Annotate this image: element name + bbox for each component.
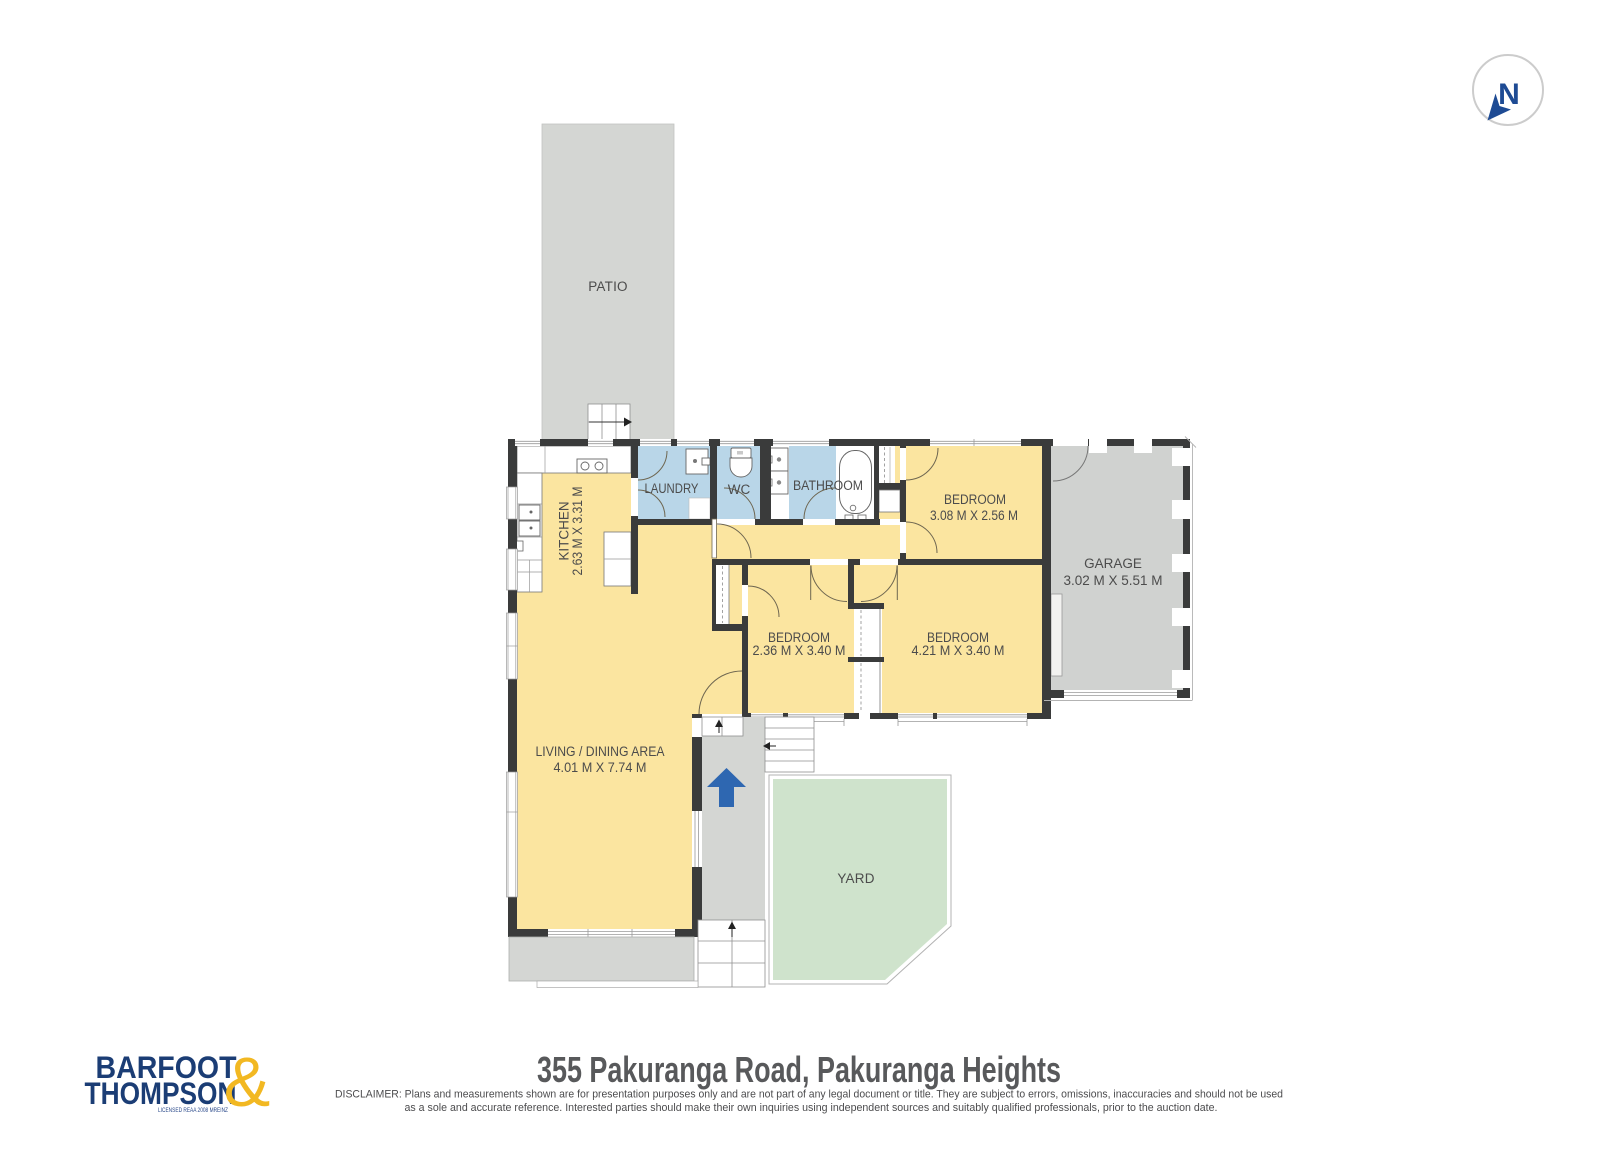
svg-text:BEDROOM: BEDROOM <box>944 492 1006 507</box>
svg-text:BATHROOM: BATHROOM <box>793 478 863 493</box>
svg-text:3.02 M X 5.51 M: 3.02 M X 5.51 M <box>1063 573 1162 588</box>
svg-text:N: N <box>1498 78 1520 111</box>
svg-text:YARD: YARD <box>837 871 874 886</box>
svg-text:PATIO: PATIO <box>588 279 628 294</box>
svg-text:LAUNDRY: LAUNDRY <box>645 481 699 496</box>
svg-text:2.63 M X 3.31 M: 2.63 M X 3.31 M <box>570 487 585 576</box>
svg-text:GARAGE: GARAGE <box>1084 556 1142 571</box>
svg-text:WC: WC <box>728 482 751 497</box>
svg-text:&: & <box>224 1043 271 1121</box>
svg-text:DISCLAIMER: Plans and measurem: DISCLAIMER: Plans and measurements shown… <box>335 1089 1283 1101</box>
svg-text:LICENSED REAA 2008 MREINZ: LICENSED REAA 2008 MREINZ <box>158 1107 228 1114</box>
svg-text:3.08 M X 2.56 M: 3.08 M X 2.56 M <box>930 508 1018 523</box>
svg-text:4.21 M X 3.40 M: 4.21 M X 3.40 M <box>912 643 1005 658</box>
svg-text:as a sole and accurate referen: as a sole and accurate reference. Intere… <box>405 1102 1218 1114</box>
svg-text:4.01 M X 7.74 M: 4.01 M X 7.74 M <box>554 760 647 775</box>
svg-text:2.36 M X 3.40 M: 2.36 M X 3.40 M <box>753 643 846 658</box>
svg-text:LIVING / DINING AREA: LIVING / DINING AREA <box>536 744 665 759</box>
svg-text:THOMPSON: THOMPSON <box>85 1075 237 1111</box>
svg-text:355 Pakuranga Road, Pakuranga: 355 Pakuranga Road, Pakuranga Heights <box>537 1049 1061 1090</box>
